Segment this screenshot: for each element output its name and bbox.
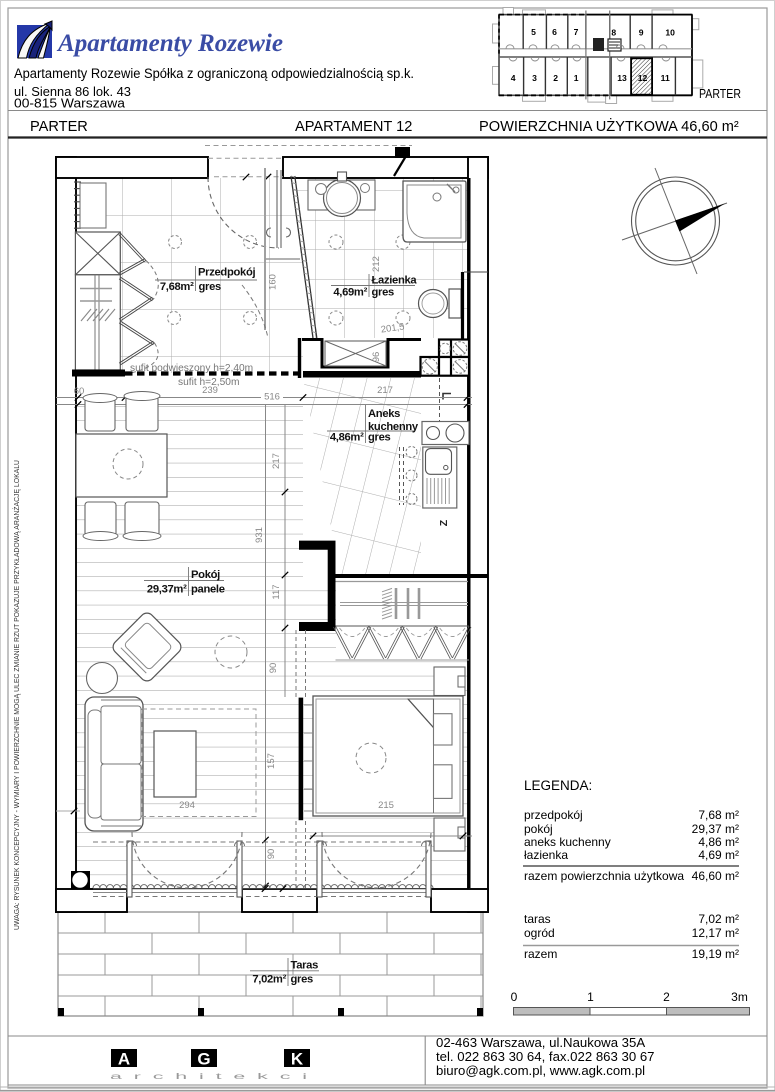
svg-text:157: 157 (266, 753, 277, 769)
svg-text:516: 516 (264, 392, 280, 403)
svg-text:3m: 3m (731, 990, 748, 1004)
svg-text:29,37 m²: 29,37 m² (692, 822, 739, 836)
svg-text:łazienka: łazienka (524, 848, 568, 862)
svg-text:90: 90 (266, 849, 277, 860)
svg-text:02-463 Warszawa, ul.Naukowa 35: 02-463 Warszawa, ul.Naukowa 35A (436, 1035, 645, 1050)
svg-text:6: 6 (552, 27, 557, 37)
svg-text:Pokój: Pokój (191, 569, 220, 581)
svg-text:4: 4 (511, 73, 516, 83)
svg-text:19,19 m²: 19,19 m² (692, 947, 739, 961)
svg-text:96: 96 (371, 352, 382, 363)
svg-text:biuro@agk.com.pl, www.agk.com.: biuro@agk.com.pl, www.agk.com.pl (436, 1063, 645, 1078)
svg-text:13: 13 (617, 73, 627, 83)
svg-text:215: 215 (378, 800, 394, 811)
svg-text:1: 1 (587, 990, 594, 1004)
svg-text:PARTER: PARTER (30, 119, 88, 135)
svg-text:7: 7 (574, 27, 579, 37)
svg-text:4,69m²: 4,69m² (333, 287, 367, 299)
svg-text:7,68m²: 7,68m² (160, 281, 194, 293)
svg-text:aneks kuchenny: aneks kuchenny (524, 835, 611, 849)
svg-text:931: 931 (254, 527, 265, 543)
svg-text:G: G (197, 1050, 210, 1069)
svg-text:12,17 m²: 12,17 m² (692, 926, 739, 940)
svg-text:razem powierzchnia użytkowa: razem powierzchnia użytkowa (524, 869, 684, 883)
svg-text:117: 117 (271, 584, 282, 599)
svg-text:A: A (118, 1050, 130, 1069)
svg-text:10: 10 (665, 28, 675, 38)
svg-text:taras: taras (524, 912, 551, 926)
svg-text:gres: gres (199, 281, 222, 293)
svg-text:4,69 m²: 4,69 m² (698, 848, 739, 862)
svg-text:ogród: ogród (524, 926, 555, 940)
svg-text:212: 212 (371, 256, 382, 272)
svg-text:APARTAMENT 12: APARTAMENT 12 (295, 119, 412, 135)
svg-text:5: 5 (531, 27, 536, 37)
svg-text:gres: gres (368, 432, 391, 444)
svg-text:90: 90 (268, 663, 279, 674)
svg-text:gres: gres (291, 974, 314, 986)
svg-text:UWAGA: RYSUNEK KONCEPCYJNY -: UWAGA: RYSUNEK KONCEPCYJNY - WYMIARY I P… (12, 460, 21, 930)
svg-text:294: 294 (179, 800, 195, 811)
svg-text:46,60 m²: 46,60 m² (692, 869, 739, 883)
svg-text:Przedpokój: Przedpokój (198, 267, 255, 279)
svg-text:239: 239 (202, 385, 218, 396)
svg-text:7,02 m²: 7,02 m² (698, 912, 739, 926)
svg-text:panele: panele (191, 584, 225, 596)
svg-text:tel. 022 863 30 64, fax.022 86: tel. 022 863 30 64, fax.022 863 30 67 (436, 1049, 655, 1064)
svg-text:9: 9 (639, 28, 644, 38)
svg-text:60: 60 (74, 386, 85, 397)
svg-text:12: 12 (638, 73, 648, 83)
svg-text:Apartamenty Rozewie: Apartamenty Rozewie (56, 30, 283, 57)
svg-text:pokój: pokój (524, 822, 553, 836)
svg-text:3: 3 (532, 73, 537, 83)
svg-text:217: 217 (377, 385, 393, 396)
svg-text:POWIERZCHNIA UŻYTKOWA 46,60 m²: POWIERZCHNIA UŻYTKOWA 46,60 m² (479, 117, 739, 135)
svg-text:2: 2 (663, 990, 670, 1004)
svg-text:4,86m²: 4,86m² (330, 432, 364, 444)
svg-text:Apartamenty Rozewie Spółka z o: Apartamenty Rozewie Spółka z ograniczoną… (14, 66, 414, 82)
svg-text:Taras: Taras (291, 960, 319, 972)
svg-text:0: 0 (511, 990, 518, 1004)
svg-text:1: 1 (574, 73, 579, 83)
svg-text:4,86 m²: 4,86 m² (698, 835, 739, 849)
svg-text:29,37m²: 29,37m² (147, 584, 187, 596)
svg-text:K: K (291, 1050, 304, 1069)
svg-text:LEGENDA:: LEGENDA: (524, 778, 592, 793)
svg-text:gres: gres (372, 287, 395, 299)
svg-text:00-815 Warszawa: 00-815 Warszawa (14, 96, 126, 111)
svg-text:8: 8 (611, 28, 616, 38)
svg-text:Z: Z (438, 519, 450, 526)
svg-text:160: 160 (268, 274, 279, 290)
svg-text:2: 2 (553, 73, 558, 83)
svg-text:PARTER: PARTER (699, 87, 741, 101)
svg-text:7,68 m²: 7,68 m² (698, 808, 739, 822)
svg-text:11: 11 (661, 73, 670, 83)
svg-text:217: 217 (271, 453, 282, 469)
svg-text:Łazienka: Łazienka (372, 275, 418, 287)
svg-text:przedpokój: przedpokój (524, 808, 583, 822)
svg-text:Aneks: Aneks (368, 408, 400, 420)
svg-text:a r c h i t e k c i: a r c h i t e k c i (110, 1071, 307, 1081)
svg-text:7,02m²: 7,02m² (252, 974, 286, 986)
svg-text:razem: razem (524, 947, 557, 961)
